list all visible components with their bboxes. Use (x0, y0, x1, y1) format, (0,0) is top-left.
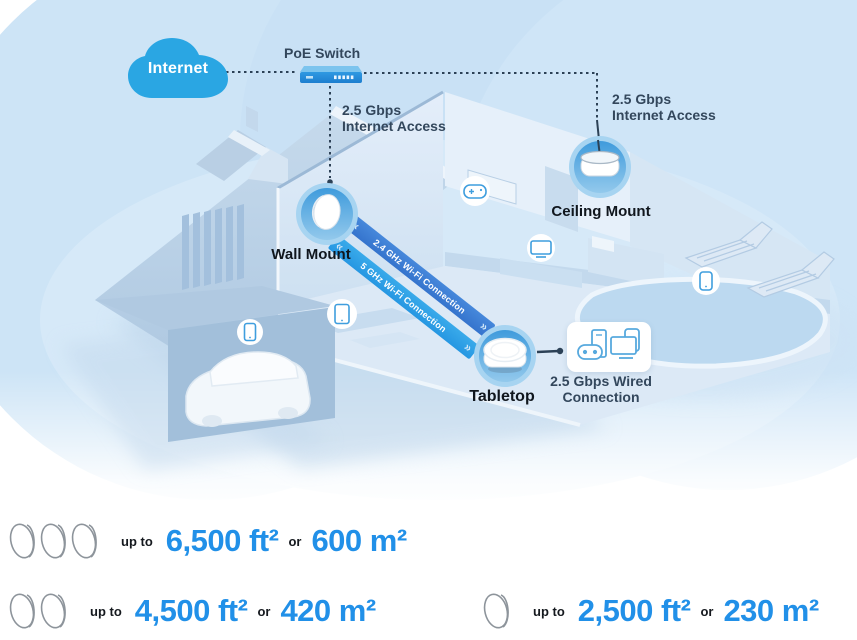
mesh-unit-icon (8, 518, 42, 564)
coverage-metric: 420 m² (280, 593, 375, 629)
upto-label: up to (533, 604, 565, 619)
wall-access-line2: Internet Access (342, 119, 446, 135)
wall-access-line1: 2.5 Gbps (342, 103, 446, 119)
coverage-row-1-pack: up to 2,500 ft² or 230 m² (482, 588, 819, 634)
product-diagram: « 2.4 GHz Wi-Fi Connection » « 5 GHz Wi-… (0, 0, 857, 640)
ceiling-access-line2: Internet Access (612, 108, 716, 124)
mesh-unit-icons (482, 588, 513, 634)
mesh-unit-ceiling-icon (569, 136, 631, 198)
coverage-metric: 230 m² (723, 593, 818, 629)
ceiling-mount-label: Ceiling Mount (535, 204, 667, 221)
or-label: or (288, 534, 301, 549)
coverage-row-3-pack: up to 6,500 ft² or 600 m² (8, 518, 407, 564)
poe-switch-icon (300, 66, 362, 83)
poe-switch-label: PoE Switch (284, 46, 384, 62)
coverage-stats: up to 6,500 ft² or 600 m² up to 4,500 ft… (0, 508, 857, 640)
mesh-unit-icon (70, 518, 104, 564)
upto-label: up to (121, 534, 153, 549)
ceiling-access-line1: 2.5 Gbps (612, 92, 716, 108)
ceiling-access-label: 2.5 Gbps Internet Access (612, 92, 716, 123)
wired-line1: 2.5 Gbps Wired (538, 374, 664, 390)
coverage-imperial: 2,500 ft² (578, 593, 691, 629)
wall-mount-label: Wall Mount (246, 247, 376, 264)
mesh-unit-wall-icon (296, 183, 358, 245)
coverage-imperial: 6,500 ft² (166, 523, 279, 559)
mesh-unit-icons (8, 518, 101, 564)
or-label: or (700, 604, 713, 619)
internet-label: Internet (128, 60, 228, 78)
or-label: or (257, 604, 270, 619)
mesh-unit-icon (482, 588, 516, 634)
wired-connection-label: 2.5 Gbps Wired Connection (538, 374, 664, 405)
wired-line2: Connection (538, 390, 664, 406)
coverage-imperial: 4,500 ft² (135, 593, 248, 629)
mesh-unit-tabletop-icon (474, 325, 536, 387)
coverage-row-2-pack: up to 4,500 ft² or 420 m² (8, 588, 376, 634)
mesh-unit-icon (8, 588, 42, 634)
mesh-unit-icon (39, 588, 73, 634)
mesh-unit-icons (8, 588, 70, 634)
upto-label: up to (90, 604, 122, 619)
wall-access-label: 2.5 Gbps Internet Access (342, 103, 446, 134)
mesh-unit-icon (39, 518, 73, 564)
coverage-metric: 600 m² (311, 523, 406, 559)
